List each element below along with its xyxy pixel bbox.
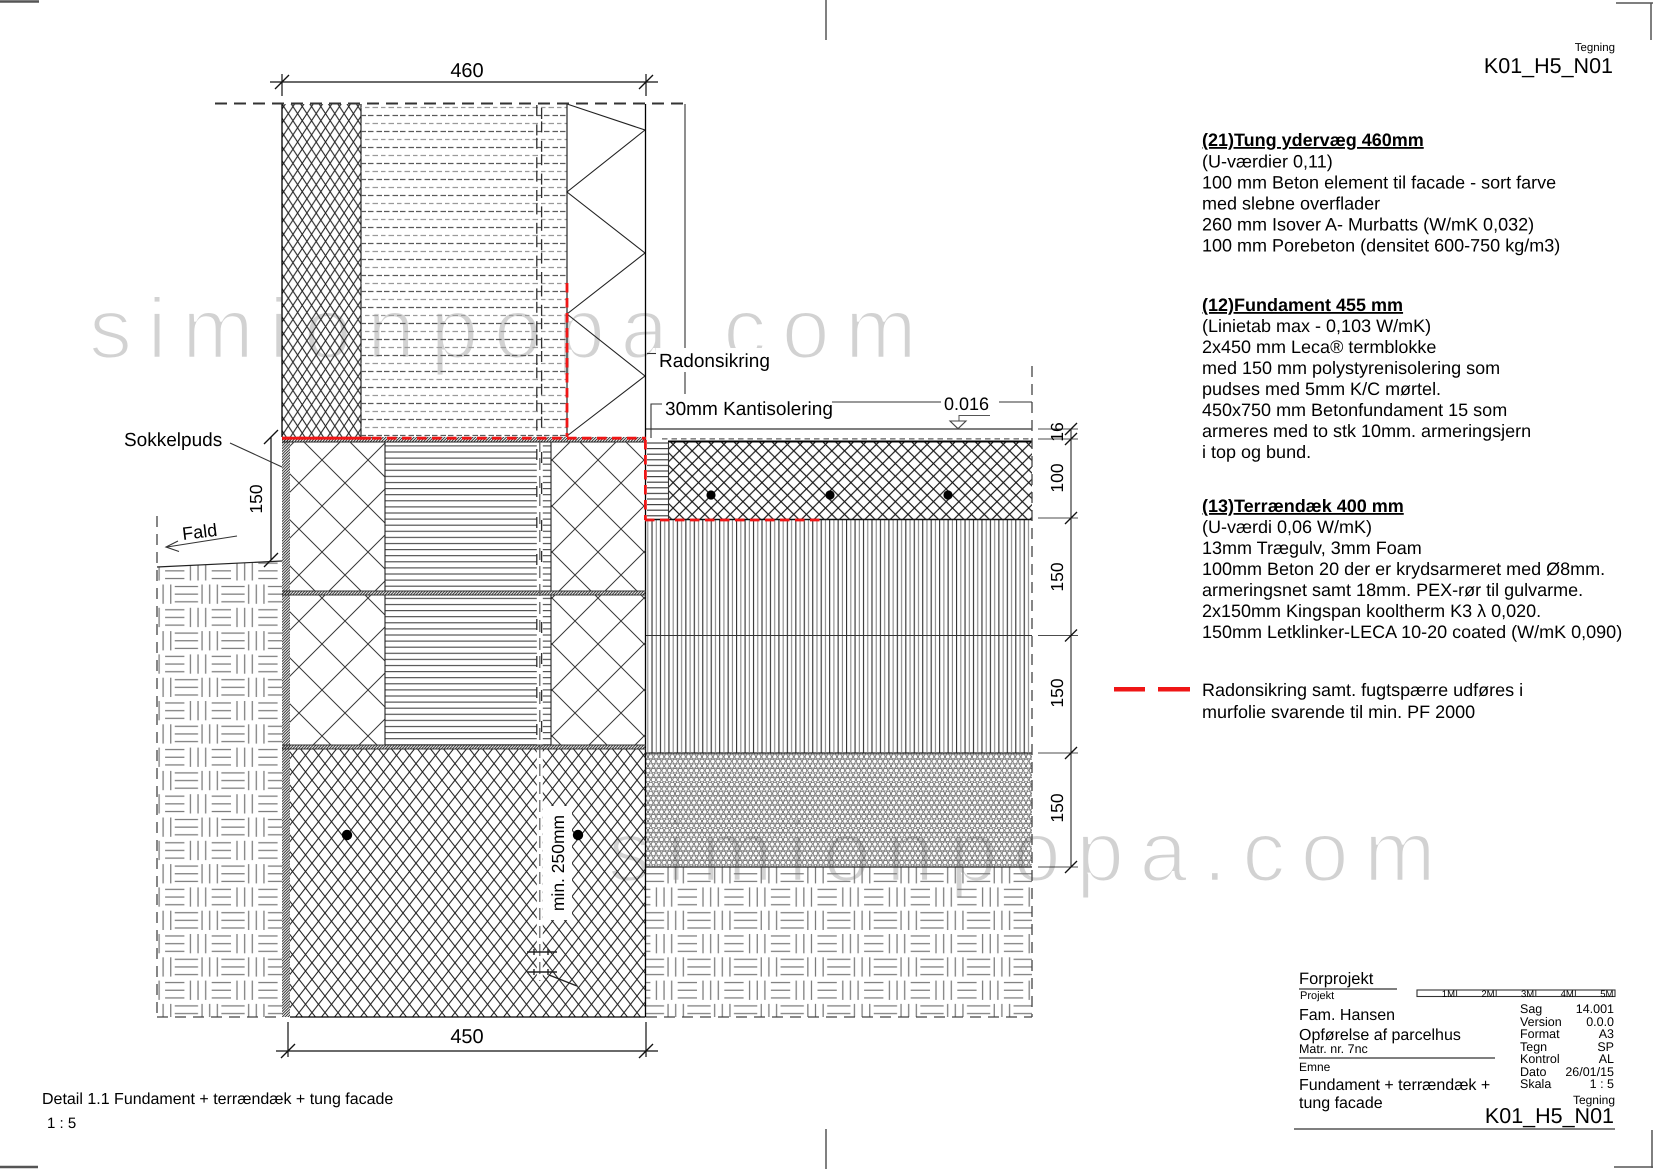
svg-text:150: 150 [246,484,266,513]
svg-text:Forprojekt: Forprojekt [1299,970,1374,988]
svg-text:K01_H5_N01: K01_H5_N01 [1484,54,1613,78]
svg-text:Radonsikring samt. fugtspærre: Radonsikring samt. fugtspærre udføres i [1202,680,1523,700]
svg-text:Detail 1.1 Fundament + terrænd: Detail 1.1 Fundament + terrændæk + tung … [42,1091,393,1108]
svg-text:Sokkelpuds: Sokkelpuds [124,430,222,451]
svg-text:3M: 3M [1521,989,1534,1000]
svg-text:150: 150 [1047,793,1067,822]
svg-text:med 150 mm polystyrenisolering: med 150 mm polystyrenisolering som [1202,358,1500,378]
svg-text:Matr. nr. 7nc: Matr. nr. 7nc [1299,1042,1368,1056]
svg-text:150mm Letklinker-LECA 10-20 co: 150mm Letklinker-LECA 10-20 coated (W/mK… [1202,622,1622,642]
svg-text:murfolie svarende til min. PF: murfolie svarende til min. PF 2000 [1202,702,1475,722]
svg-text:armeringsnet samt 18mm. PEX-rø: armeringsnet samt 18mm. PEX-rør til gulv… [1202,580,1583,600]
svg-text:pudses med 5mm K/C mørtel.: pudses med 5mm K/C mørtel. [1202,379,1441,399]
svg-text:K01_H5_N01: K01_H5_N01 [1485,1104,1614,1128]
svg-text:Tegning: Tegning [1575,42,1615,54]
svg-text:Kontrol: Kontrol [1520,1052,1560,1066]
svg-text:Fam. Hansen: Fam. Hansen [1299,1007,1395,1024]
svg-text:260 mm Isover A- Murbatts (W/m: 260 mm Isover A- Murbatts (W/mK 0,032) [1202,215,1534,235]
svg-text:0.016: 0.016 [944,394,989,414]
svg-text:Format: Format [1520,1027,1560,1041]
svg-text:(21)Tung ydervæg 460mm: (21)Tung ydervæg 460mm [1202,130,1424,150]
svg-text:150: 150 [1047,562,1067,591]
svg-text:min. 250mm: min. 250mm [548,815,568,911]
svg-text:150: 150 [1047,678,1067,707]
svg-text:Emne: Emne [1299,1060,1331,1074]
svg-text:460: 460 [450,60,483,82]
svg-text:13mm Trægulv, 3mm Foam: 13mm Trægulv, 3mm Foam [1202,538,1422,558]
svg-text:100: 100 [1047,463,1067,492]
svg-text:armeres med to stk 10mm. armer: armeres med to stk 10mm. armeringsjern [1202,421,1531,441]
svg-text:(U-værdier 0,11): (U-værdier 0,11) [1202,152,1333,172]
svg-text:Radonsikring: Radonsikring [659,351,770,372]
svg-text:(U-værdi 0,06 W/mK): (U-værdi 0,06 W/mK) [1202,517,1372,537]
svg-text:(Linietab max - 0,103 W/mK): (Linietab max - 0,103 W/mK) [1202,316,1431,336]
svg-text:14.001: 14.001 [1576,1002,1614,1016]
svg-text:(12)Fundament 455 mm: (12)Fundament 455 mm [1202,295,1403,315]
svg-text:5M: 5M [1600,989,1613,1000]
svg-text:1 : 5: 1 : 5 [47,1115,76,1132]
svg-text:Projekt: Projekt [1300,990,1334,1002]
svg-text:4M: 4M [1561,989,1574,1000]
svg-text:100 mm Porebeton (densitet 600: 100 mm Porebeton (densitet 600-750 kg/m3… [1202,236,1560,256]
svg-text:Sag: Sag [1520,1002,1542,1016]
svg-text:tung facade: tung facade [1299,1095,1383,1112]
svg-text:med slebne overflader: med slebne overflader [1202,194,1380,214]
svg-text:16: 16 [1047,422,1067,441]
svg-text:A3: A3 [1599,1027,1614,1041]
svg-text:100mm Beton 20 der er krydsarm: 100mm Beton 20 der er krydsarmeret med Ø… [1202,559,1605,579]
svg-text:2x450 mm Leca® termblokke: 2x450 mm Leca® termblokke [1202,337,1436,357]
svg-text:1M: 1M [1442,989,1455,1000]
svg-text:100 mm Beton element til facad: 100 mm Beton element til facade - sort f… [1202,173,1556,193]
svg-text:i top og bund.: i top og bund. [1202,442,1311,462]
svg-text:2M: 2M [1481,989,1494,1000]
svg-text:Skala: Skala [1520,1077,1551,1091]
svg-text:1 : 5: 1 : 5 [1590,1077,1614,1091]
svg-text:450: 450 [450,1026,483,1048]
svg-text:AL: AL [1599,1052,1614,1066]
svg-text:30mm Kantisolering: 30mm Kantisolering [665,399,833,420]
svg-text:450x750 mm Betonfundament 15 s: 450x750 mm Betonfundament 15 som [1202,400,1507,420]
svg-text:(13)Terrændæk 400 mm: (13)Terrændæk 400 mm [1202,496,1404,516]
svg-text:Fundament + terrændæk +: Fundament + terrændæk + [1299,1077,1490,1094]
svg-text:2x150mm Kingspan kooltherm K3: 2x150mm Kingspan kooltherm K3 λ 0,020. [1202,601,1541,621]
